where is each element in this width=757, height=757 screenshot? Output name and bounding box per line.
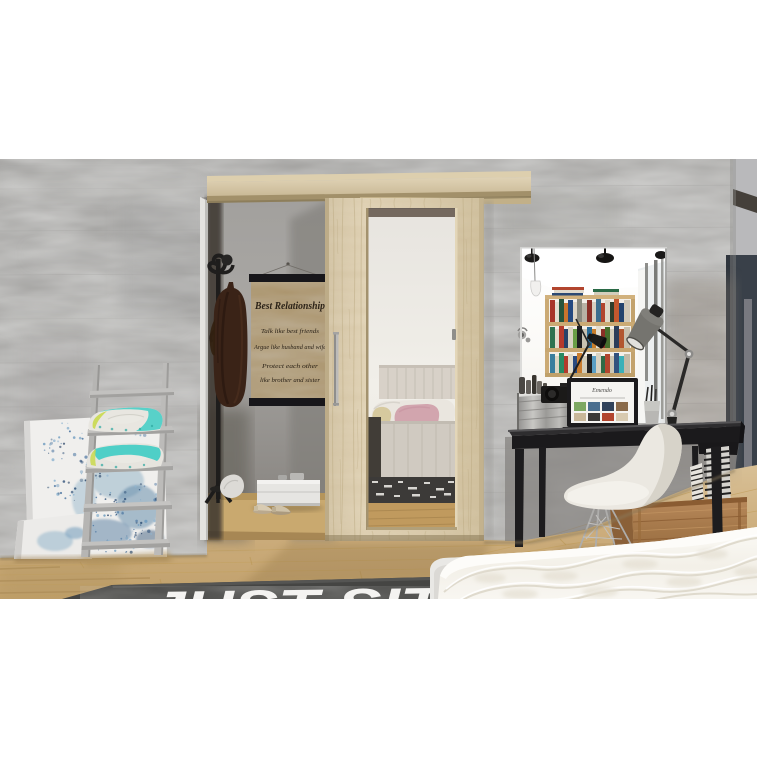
svg-text:Emendo: Emendo [591,388,612,394]
svg-text:JUST SIT: JUST SIT [148,579,446,599]
svg-text:Argue like husband and wife: Argue like husband and wife [253,344,326,351]
svg-text:Talk like best friends: Talk like best friends [261,328,319,335]
svg-text:like brother and sister: like brother and sister [260,377,320,384]
svg-text:Best Relationship: Best Relationship [254,301,325,312]
svg-text:Protect each other: Protect each other [261,363,319,370]
